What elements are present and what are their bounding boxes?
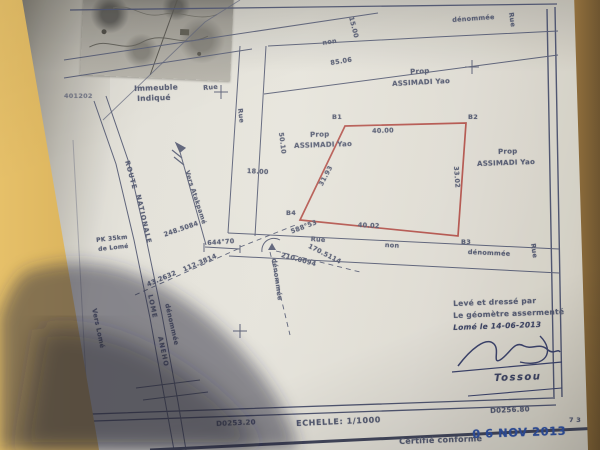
parcel-dim-right: 33.02 — [453, 166, 461, 188]
inset-leader-line — [103, 0, 240, 120]
street-label-rue-topright: Rue — [508, 12, 516, 28]
top-road-lower-line — [64, 49, 252, 78]
parcel-dim-top: 40.00 — [372, 127, 394, 134]
signature-name: Tossou — [494, 372, 542, 384]
photographed-survey-plan: Immeuble Indiqué 401202 Rue Rue Rue non … — [0, 0, 600, 450]
station-triangle-icon — [268, 243, 276, 250]
name-underline — [468, 388, 562, 396]
route-tick-lines — [136, 380, 208, 400]
parcel-corner-b2: B2 — [468, 114, 478, 121]
parcel-dim-bottom: 40.02 — [358, 222, 380, 230]
dim-block-side: 50.10 — [278, 132, 287, 154]
street-label-rue-vertical: Rue — [237, 108, 245, 123]
frame-top-border — [70, 4, 557, 10]
bottom-road-denommee: dénommée — [468, 249, 511, 257]
bottom-road-rue: Rue — [311, 236, 326, 244]
grid-cross-icon — [233, 324, 247, 338]
grid-cross-icon — [465, 60, 479, 74]
survey-ref-2: 644°70 — [207, 238, 235, 246]
street-label-rue: Rue — [203, 84, 218, 92]
dim-rue-width: 18.00 — [247, 168, 269, 176]
frame-right-border — [547, 7, 562, 399]
top-road-right-line — [268, 31, 558, 46]
parcel-corner-b4: B4 — [286, 210, 296, 217]
margin-reference: 401202 — [64, 93, 93, 100]
owner-prop-top: Prop — [410, 68, 430, 76]
plan-paper: Immeuble Indiqué 401202 Rue Rue Rue non … — [0, 0, 600, 450]
parcel-corner-b3: B3 — [461, 239, 471, 246]
parcel-corner-b1: B1 — [332, 114, 342, 121]
signature-underline — [452, 362, 562, 372]
cross-street-lines — [228, 46, 266, 236]
bottom-road-rue-vertical: Rue — [530, 243, 538, 259]
owner-prop-right: Prop — [498, 148, 518, 156]
signature-stroke — [452, 336, 562, 396]
owner-prop-left: Prop — [310, 131, 330, 139]
bottom-road-non: non — [385, 242, 400, 249]
inset-caption-line2: Indiqué — [137, 94, 171, 103]
inset-caption-line1: Immeuble — [134, 83, 178, 92]
footer-page: 7 3 — [569, 417, 581, 424]
